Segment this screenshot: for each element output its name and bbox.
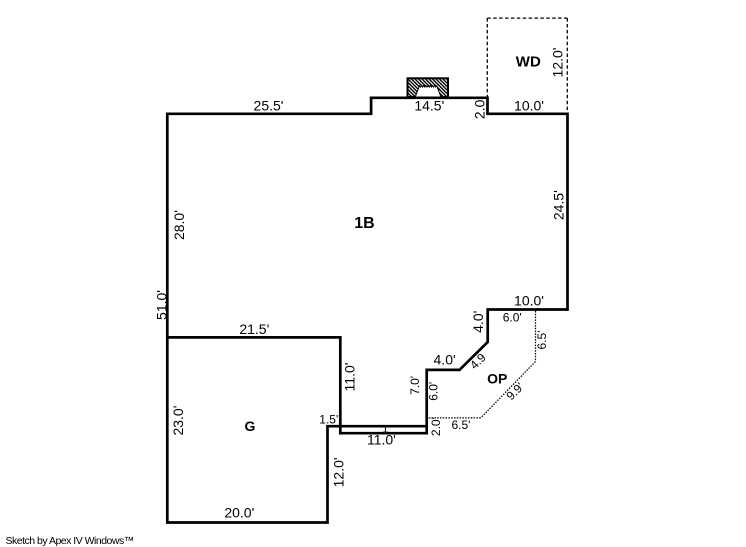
- svg-text:4.0': 4.0': [470, 311, 486, 333]
- svg-text:14.5': 14.5': [414, 98, 444, 114]
- svg-text:1: 1: [382, 424, 388, 436]
- svg-text:10.0': 10.0': [514, 98, 544, 114]
- svg-text:WD: WD: [516, 54, 541, 71]
- svg-text:1.5': 1.5': [319, 412, 338, 426]
- svg-text:1B: 1B: [354, 215, 374, 232]
- svg-text:G: G: [245, 418, 256, 434]
- svg-text:OP: OP: [487, 370, 507, 386]
- svg-text:7.0': 7.0': [408, 376, 422, 395]
- svg-text:24.5': 24.5': [550, 190, 566, 220]
- svg-text:6.0': 6.0': [427, 382, 441, 401]
- svg-text:4.0': 4.0': [434, 351, 456, 367]
- svg-text:6.5': 6.5': [452, 418, 471, 432]
- svg-text:Sketch by Apex IV Windows™: Sketch by Apex IV Windows™: [6, 535, 134, 547]
- svg-text:20.0': 20.0': [224, 505, 254, 521]
- svg-text:4.9: 4.9: [467, 350, 489, 372]
- svg-text:2.0': 2.0': [429, 417, 443, 436]
- svg-text:6.5': 6.5': [535, 331, 549, 350]
- svg-text:12.0': 12.0': [331, 457, 347, 487]
- svg-text:2.0': 2.0': [471, 97, 487, 119]
- svg-text:6.0': 6.0': [503, 310, 522, 324]
- svg-text:23.0': 23.0': [170, 406, 186, 436]
- svg-text:28.0': 28.0': [171, 210, 187, 240]
- svg-text:21.5': 21.5': [239, 321, 269, 337]
- svg-text:11.0': 11.0': [341, 363, 357, 392]
- svg-text:10.0': 10.0': [514, 292, 544, 308]
- svg-text:25.5': 25.5': [254, 98, 284, 114]
- svg-text:51.0': 51.0': [154, 290, 170, 320]
- svg-text:12.0': 12.0': [549, 48, 565, 78]
